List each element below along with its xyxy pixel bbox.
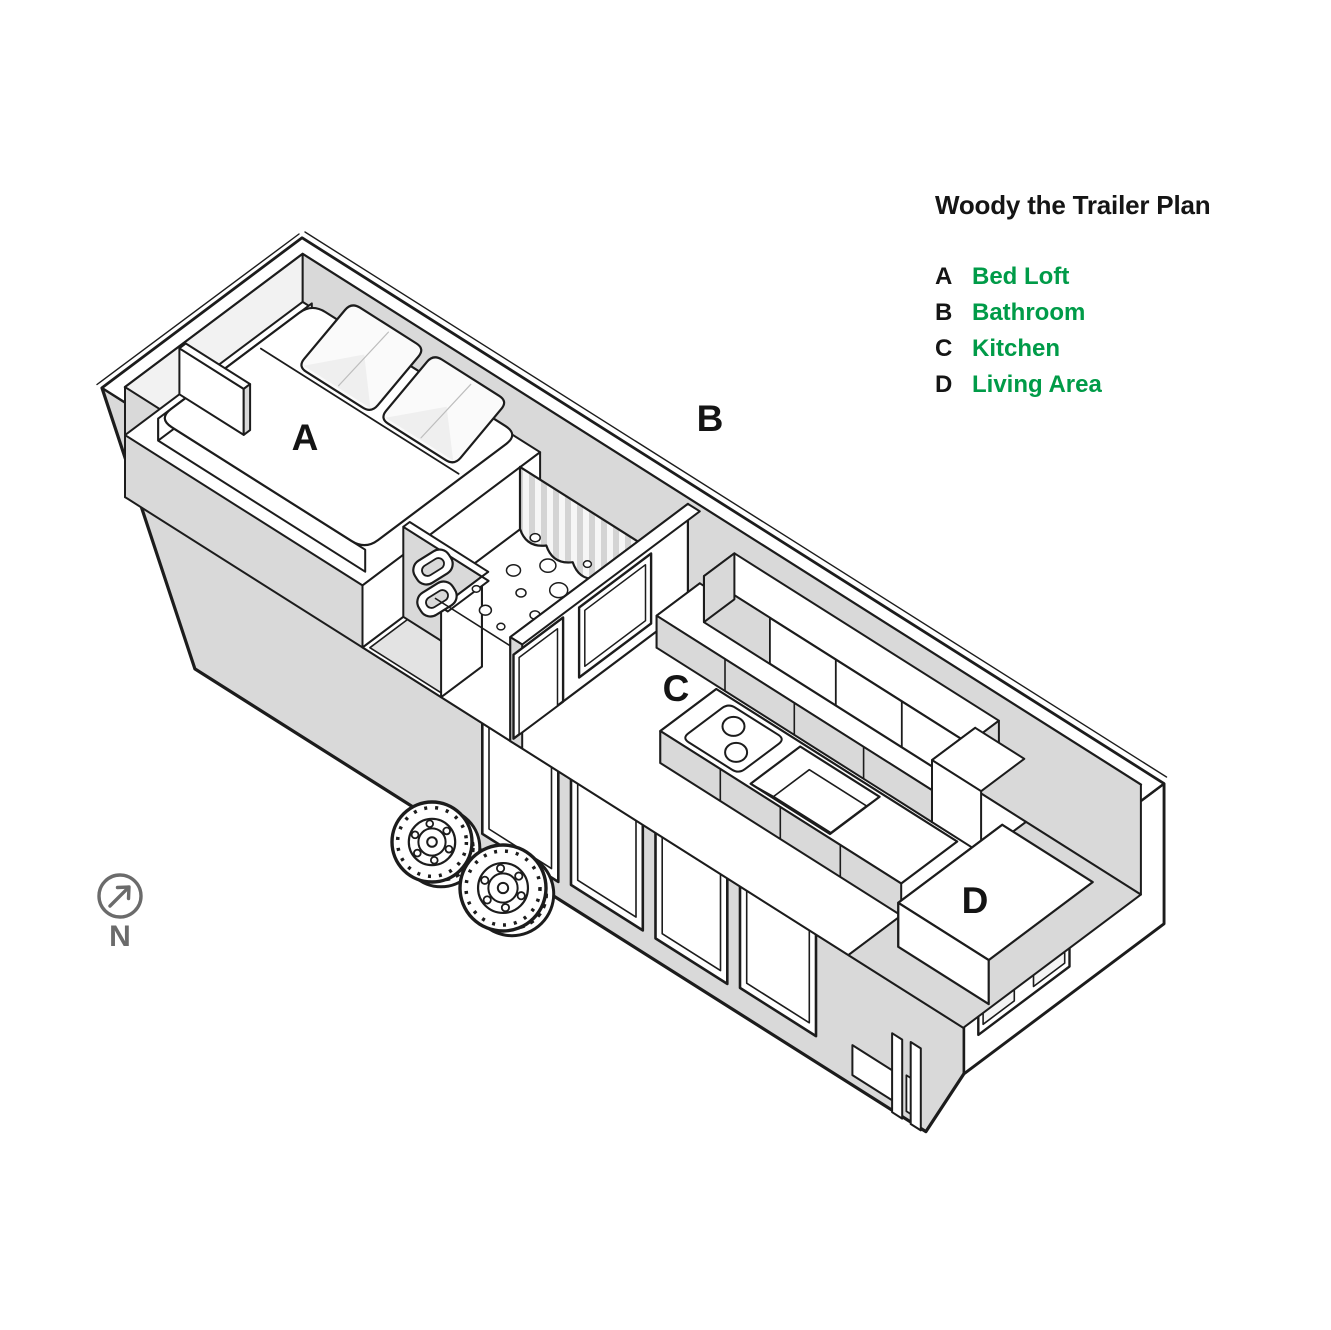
legend-rows: A Bed Loft B Bathroom C Kitchen D Living… — [935, 263, 1295, 407]
legend-letter: B — [935, 299, 972, 327]
plan-label-bathroom: B — [697, 398, 724, 439]
legend-row: D Living Area — [935, 371, 1295, 407]
plan-label-bed-loft: A — [292, 417, 319, 458]
legend-row: A Bed Loft — [935, 263, 1295, 299]
north-arrow-icon — [110, 888, 128, 906]
legend-letter: A — [935, 263, 972, 291]
legend-letter: C — [935, 335, 972, 363]
legend-row: B Bathroom — [935, 299, 1295, 335]
legend-room-name: Bed Loft — [972, 263, 1069, 291]
page: A B C D N Woody the Trailer Plan A Bed L… — [0, 0, 1331, 1330]
plan-label-kitchen: C — [663, 668, 690, 709]
legend: Woody the Trailer Plan A Bed Loft B Bath… — [935, 190, 1295, 407]
legend-letter: D — [935, 371, 972, 399]
north-label: N — [109, 920, 131, 953]
legend-room-name: Kitchen — [972, 335, 1060, 363]
compass: N — [99, 875, 141, 953]
plan-label-living-area: D — [962, 880, 989, 921]
legend-room-name: Living Area — [972, 371, 1102, 399]
legend-room-name: Bathroom — [972, 299, 1085, 327]
legend-title: Woody the Trailer Plan — [935, 190, 1295, 221]
legend-row: C Kitchen — [935, 335, 1295, 371]
